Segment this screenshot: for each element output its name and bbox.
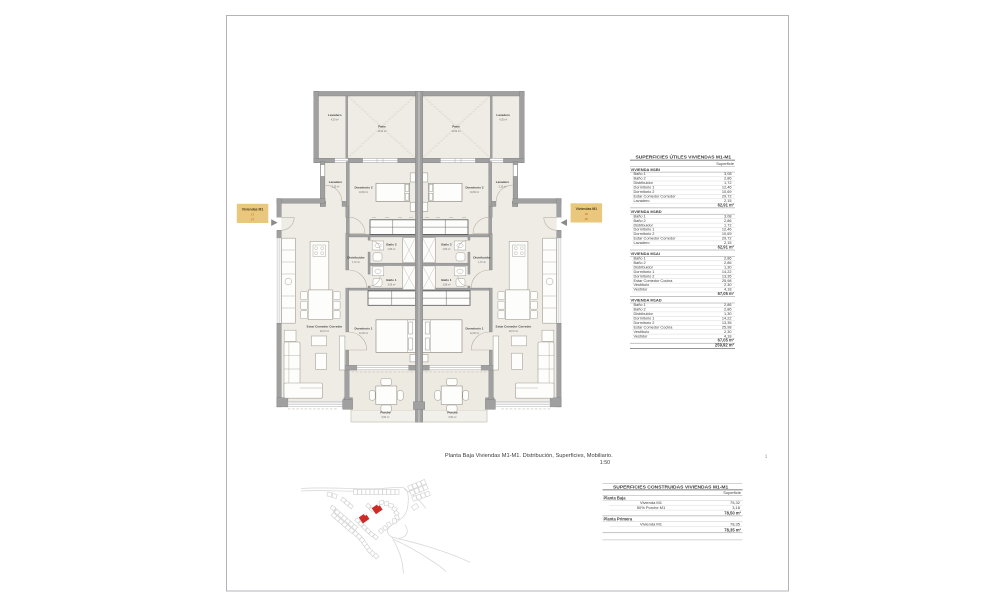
svg-text:VIVIENDA M1AD: VIVIENDA M1AD	[631, 298, 662, 303]
svg-text:Superficie: Superficie	[716, 161, 735, 166]
svg-text:6,50 m²: 6,50 m²	[382, 416, 390, 419]
svg-text:2,30: 2,30	[724, 283, 731, 287]
svg-text:2,86 m²: 2,86 m²	[443, 248, 451, 251]
svg-text:VIVIENDA M1BI: VIVIENDA M1BI	[631, 167, 660, 172]
svg-text:Distribuidor: Distribuidor	[473, 256, 491, 260]
svg-text:62,91 m²: 62,91 m²	[718, 202, 735, 207]
svg-text:Baño 2: Baño 2	[441, 243, 451, 247]
svg-text:1,30: 1,30	[724, 265, 731, 269]
svg-text:Distribuidor: Distribuidor	[634, 181, 654, 185]
svg-text:SUPERFICIES CONSTRUIDAS VIVIEN: SUPERFICIES CONSTRUIDAS VIVIENDAS M1-M1	[613, 484, 728, 490]
svg-text:Vivienda M1: Vivienda M1	[640, 522, 663, 527]
svg-text:12,46 m²: 12,46 m²	[359, 332, 368, 335]
svg-text:13,35: 13,35	[722, 274, 732, 278]
svg-text:2,86: 2,86	[724, 257, 731, 261]
svg-text:Lavadero: Lavadero	[634, 199, 650, 203]
svg-text:Dormitorio 1: Dormitorio 1	[634, 228, 655, 232]
svg-text:Dormitorio 1: Dormitorio 1	[354, 327, 372, 331]
svg-text:1,72 m²: 1,72 m²	[352, 261, 360, 264]
svg-text:Dormitorio 2: Dormitorio 2	[634, 274, 655, 278]
svg-text:Planta Primera: Planta Primera	[604, 516, 633, 521]
svg-text:Baño 2: Baño 2	[634, 261, 646, 265]
svg-text:259,92 m²: 259,92 m²	[715, 343, 735, 348]
svg-text:Superficie: Superficie	[723, 490, 742, 495]
svg-text:Baño 2: Baño 2	[634, 177, 646, 181]
svg-text:17: 17	[251, 213, 255, 217]
svg-text:3,08: 3,08	[724, 172, 731, 176]
svg-text:4,20 m²: 4,20 m²	[499, 119, 507, 122]
svg-text:3,08 m²: 3,08 m²	[388, 284, 396, 287]
svg-text:2,86: 2,86	[724, 261, 731, 265]
svg-text:18: 18	[585, 212, 589, 216]
svg-text:Planta Baja Viviendas M1-M1. D: Planta Baja Viviendas M1-M1. Distribució…	[445, 453, 613, 459]
svg-text:12,46 m²: 12,46 m²	[470, 332, 479, 335]
svg-text:Patio: Patio	[452, 125, 460, 129]
svg-text:Dormitorio 2: Dormitorio 2	[354, 186, 372, 190]
svg-text:13,35: 13,35	[722, 321, 732, 325]
svg-text:1,72 m²: 1,72 m²	[478, 261, 486, 264]
svg-text:3,08 m²: 3,08 m²	[443, 284, 451, 287]
svg-text:Dormitorio 2: Dormitorio 2	[634, 321, 655, 325]
svg-text:Viviendas M1: Viviendas M1	[242, 208, 264, 212]
svg-text:Lavadero: Lavadero	[496, 180, 510, 184]
svg-text:50% Porche M1: 50% Porche M1	[637, 505, 666, 510]
svg-text:Vestíbulo: Vestíbulo	[634, 283, 650, 287]
svg-text:Distribuidor: Distribuidor	[634, 265, 654, 269]
svg-text:2,30: 2,30	[724, 330, 731, 334]
svg-text:SUPERFICIES ÚTILES VIVIENDAS M: SUPERFICIES ÚTILES VIVIENDAS M1-M1	[635, 154, 731, 161]
svg-text:Viviendas M1: Viviendas M1	[576, 207, 598, 211]
svg-text:2,15 m²: 2,15 m²	[499, 186, 507, 189]
svg-text:78,35 m²: 78,35 m²	[724, 527, 741, 532]
svg-text:Estar Comedor Cocina: Estar Comedor Cocina	[634, 279, 674, 283]
svg-text:VIVIENDA M1BD: VIVIENDA M1BD	[631, 209, 662, 214]
svg-text:Estar Comedor Corredor: Estar Comedor Corredor	[634, 195, 677, 199]
svg-text:14,22: 14,22	[722, 317, 732, 321]
svg-text:28: 28	[585, 217, 589, 221]
svg-text:6,50 m²: 6,50 m²	[449, 416, 457, 419]
svg-text:29,72 m²: 29,72 m²	[320, 330, 329, 333]
svg-text:29,72: 29,72	[722, 237, 732, 241]
svg-text:Vestidor: Vestidor	[634, 288, 649, 292]
svg-text:Vestíbulo: Vestíbulo	[634, 330, 650, 334]
svg-text:25,98: 25,98	[722, 325, 732, 329]
svg-text:29,72 m²: 29,72 m²	[509, 330, 518, 333]
svg-text:Porche: Porche	[447, 411, 458, 415]
svg-text:29,72: 29,72	[722, 195, 732, 199]
svg-text:Baño 1: Baño 1	[634, 214, 646, 218]
svg-text:VIVIENDA M1AI: VIVIENDA M1AI	[631, 251, 660, 256]
svg-text:12,46: 12,46	[722, 186, 732, 190]
svg-text:3,08: 3,08	[724, 214, 731, 218]
svg-text:Dormitorio 2: Dormitorio 2	[634, 190, 655, 194]
svg-text:Distribuidor: Distribuidor	[634, 312, 654, 316]
svg-text:3,18: 3,18	[732, 505, 741, 510]
svg-text:Vestidor: Vestidor	[634, 334, 649, 338]
svg-text:Dormitorio 1: Dormitorio 1	[465, 327, 483, 331]
svg-text:Baño 2: Baño 2	[634, 308, 646, 312]
svg-text:1,72: 1,72	[724, 181, 731, 185]
svg-text:Baño 1: Baño 1	[634, 172, 646, 176]
svg-text:Baño 2: Baño 2	[386, 243, 396, 247]
svg-text:2,15 m²: 2,15 m²	[332, 186, 340, 189]
svg-text:10,69 m²: 10,69 m²	[470, 191, 479, 194]
svg-text:Baño 1: Baño 1	[634, 257, 646, 261]
svg-text:Estar Comedor Corredor: Estar Comedor Corredor	[496, 325, 533, 329]
svg-text:12,46: 12,46	[722, 228, 732, 232]
svg-text:67,05 m²: 67,05 m²	[718, 291, 735, 296]
svg-text:Lavadero: Lavadero	[329, 180, 343, 184]
svg-text:27: 27	[251, 218, 255, 222]
svg-text:Lavadero: Lavadero	[328, 113, 342, 117]
svg-text:62,91 m²: 62,91 m²	[718, 245, 735, 250]
svg-text:Dormitorio 1: Dormitorio 1	[634, 186, 655, 190]
svg-text:2,86: 2,86	[724, 219, 731, 223]
svg-text:Dormitorio 2: Dormitorio 2	[465, 186, 483, 190]
svg-text:10,69 m²: 10,69 m²	[359, 191, 368, 194]
svg-text:2,86 m²: 2,86 m²	[388, 248, 396, 251]
svg-text:10,69: 10,69	[722, 190, 732, 194]
svg-text:Estar Comedor Cocina: Estar Comedor Cocina	[634, 325, 674, 329]
svg-text:Lavadero: Lavadero	[496, 113, 510, 117]
svg-text:Baño 2: Baño 2	[634, 219, 646, 223]
svg-text:1:50: 1:50	[600, 460, 610, 466]
svg-text:Baño 1: Baño 1	[634, 303, 646, 307]
svg-text:14,52 m²: 14,52 m²	[451, 130, 460, 133]
svg-text:1,30: 1,30	[724, 312, 731, 316]
svg-text:Dormitorio 1: Dormitorio 1	[634, 270, 655, 274]
svg-text:Dormitorio 1: Dormitorio 1	[634, 317, 655, 321]
svg-text:4,20 m²: 4,20 m²	[331, 119, 339, 122]
svg-text:10,69: 10,69	[722, 232, 732, 236]
svg-text:Patio: Patio	[378, 125, 386, 129]
svg-text:Distribuidor: Distribuidor	[347, 256, 365, 260]
svg-text:Estar Comedor Corredor: Estar Comedor Corredor	[634, 237, 677, 241]
svg-text:78,35: 78,35	[730, 522, 741, 527]
svg-text:78,50 m²: 78,50 m²	[724, 511, 741, 516]
svg-text:14,22: 14,22	[722, 270, 732, 274]
svg-text:14,52 m²: 14,52 m²	[377, 130, 386, 133]
svg-text:Estar Comedor Corredor: Estar Comedor Corredor	[307, 325, 344, 329]
svg-text:Lavadero: Lavadero	[634, 241, 650, 245]
svg-text:2,86: 2,86	[724, 303, 731, 307]
svg-text:25,98: 25,98	[722, 279, 732, 283]
svg-text:Planta Baja: Planta Baja	[604, 495, 627, 500]
svg-text:Baño 1: Baño 1	[441, 278, 451, 282]
svg-text:Distribuidor: Distribuidor	[634, 223, 654, 227]
svg-text:Porche: Porche	[380, 411, 391, 415]
svg-text:Baño 1: Baño 1	[386, 278, 396, 282]
svg-text:2,86: 2,86	[724, 308, 731, 312]
svg-text:1,72: 1,72	[724, 223, 731, 227]
svg-text:Dormitorio 2: Dormitorio 2	[634, 232, 655, 236]
svg-text:2,86: 2,86	[724, 177, 731, 181]
